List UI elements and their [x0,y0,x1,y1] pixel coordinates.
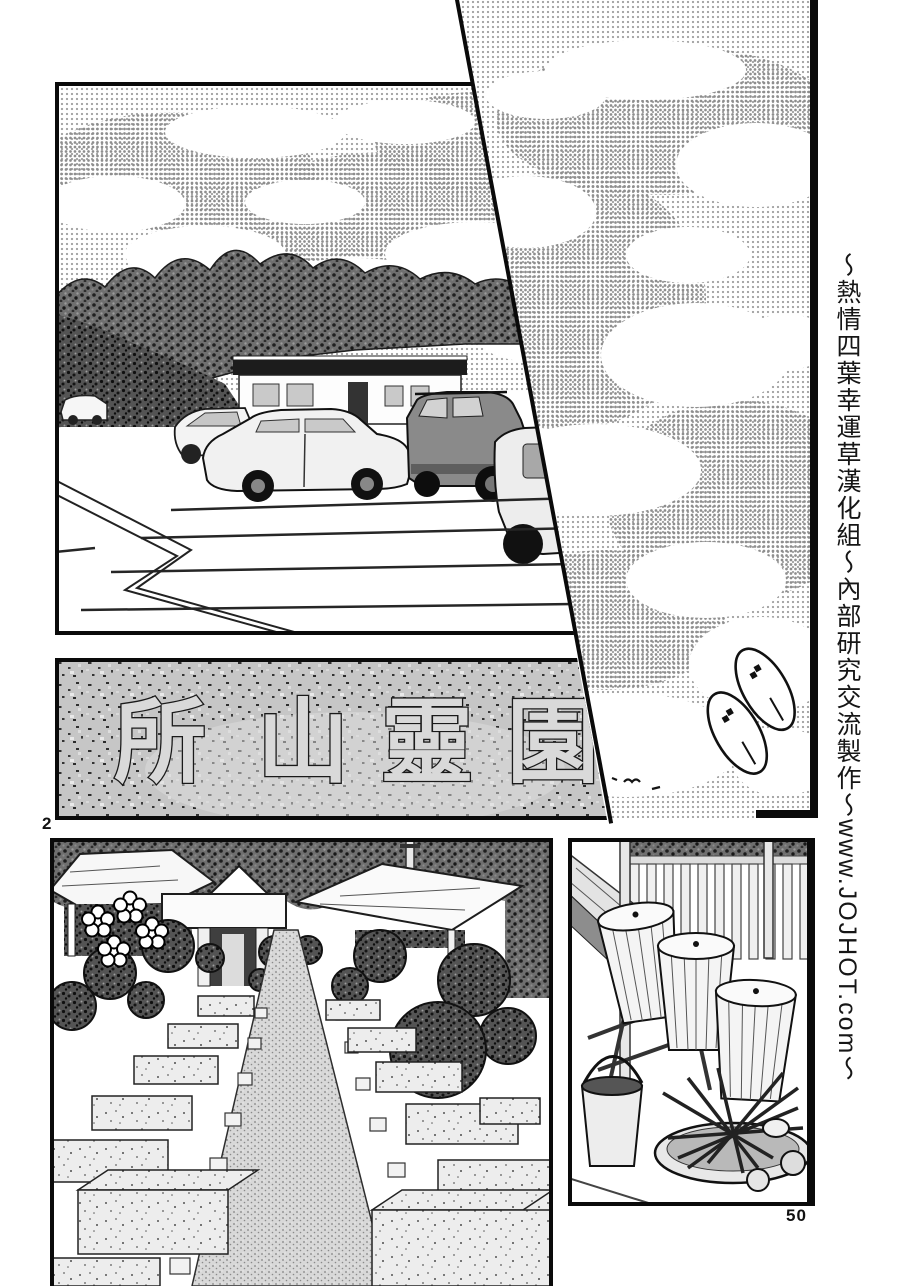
sign-char-2: 山 [257,692,349,794]
building-window [287,384,313,406]
panel-border-left [55,82,59,635]
panel-border-left [55,658,59,820]
panel-cemetery [50,838,553,1286]
building-window [253,384,279,406]
panel-stone-sign: 所 山 靈 園 [55,658,612,820]
sky-bottom-border [756,810,818,818]
panel-border-bottom [55,816,612,820]
panel-water-station [568,838,815,1206]
panel-border-top [55,658,612,662]
panel-border-right [549,838,553,1286]
panel-number: 2 [42,814,51,834]
page-number: 50 [786,1206,807,1226]
scanlation-credits: ～熱情四葉幸運草漢化組～內部研究交流製作～www.JOJHOT.com～ [830,252,864,1102]
sign-char-3: 靈 [381,692,473,794]
background-trees-right [505,878,553,998]
panel-border-bottom [55,631,577,635]
panel-border-bottom [568,1202,815,1206]
panel-border-top [568,838,815,842]
sky-right-border [810,0,818,818]
panel-border-right [807,838,815,1206]
panel-border-top [50,838,553,842]
building-window [385,386,403,406]
panel-border-left [50,838,54,1286]
sign-char-4: 園 [507,692,599,794]
panel-border-left [568,838,572,1206]
manga-page: 所 山 靈 園 [0,0,900,1286]
sign-char-1: 所 [114,692,206,794]
distant-car [61,396,107,426]
